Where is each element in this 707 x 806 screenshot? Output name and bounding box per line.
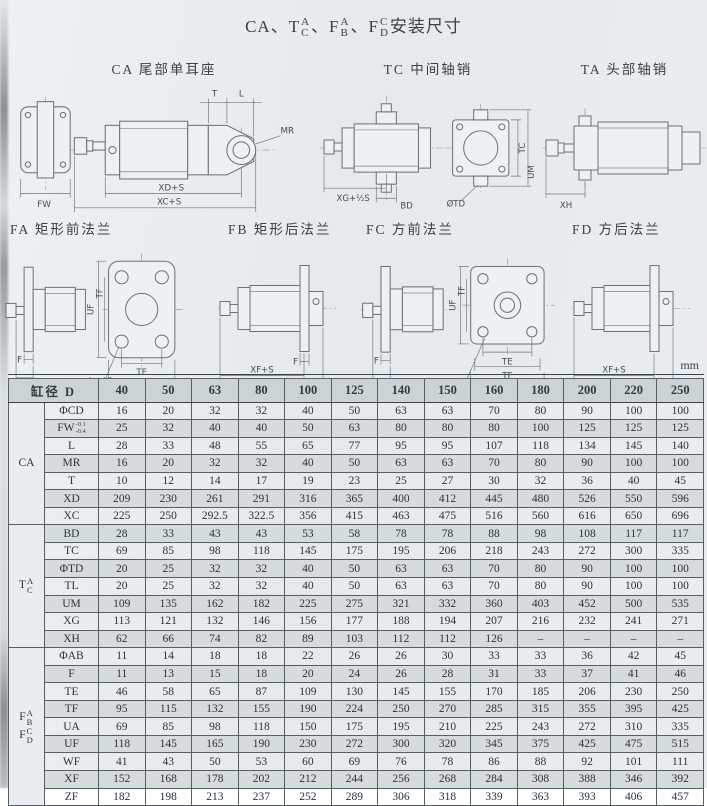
dimension-value: 63 — [424, 402, 471, 420]
dimension-value: 165 — [192, 735, 239, 753]
dimension-label: ΦAB — [45, 648, 99, 666]
dimension-value: 11 — [99, 648, 146, 666]
dimension-value: 243 — [517, 542, 564, 560]
dimension-value: 118 — [517, 437, 564, 455]
dimension-value: 40 — [610, 472, 657, 490]
table-row: FABFCDΦAB11141818222626303333364245 — [9, 648, 704, 666]
dimension-value: 696 — [657, 507, 704, 525]
dimension-value: 140 — [657, 437, 704, 455]
dimension-value: 224 — [331, 700, 378, 718]
dimension-value: 198 — [145, 788, 192, 806]
dimension-value: 109 — [99, 595, 146, 613]
dimension-value: 355 — [564, 700, 611, 718]
dimension-value: 650 — [610, 507, 657, 525]
dimension-value: 316 — [285, 490, 332, 508]
dimension-value: 16 — [99, 455, 146, 473]
dimension-value: 46 — [657, 665, 704, 683]
table-row: XC225250292.5322.53564154634755165606166… — [9, 507, 704, 525]
dimension-value: 41 — [610, 665, 657, 683]
dimension-value: 17 — [238, 472, 285, 490]
dimension-value: 53 — [285, 525, 332, 543]
dimension-value: 78 — [424, 753, 471, 771]
dimension-value: 66 — [145, 630, 192, 648]
dimension-value: 345 — [471, 735, 518, 753]
dimension-value: 46 — [99, 683, 146, 701]
dimension-value: 500 — [610, 595, 657, 613]
dimension-value: 268 — [424, 770, 471, 788]
dimension-value: 322.5 — [238, 507, 285, 525]
dimension-value: 32 — [192, 560, 239, 578]
dimension-value: 100 — [610, 455, 657, 473]
dimension-label: XG — [45, 613, 99, 631]
dimension-value: 335 — [657, 718, 704, 736]
dimension-value: 285 — [471, 700, 518, 718]
dimension-value: 40 — [192, 420, 239, 438]
dimension-value: 27 — [424, 472, 471, 490]
dimension-value: 218 — [471, 542, 518, 560]
dimension-value: 11 — [99, 665, 146, 683]
dimension-value: 16 — [99, 402, 146, 420]
dimension-value: 475 — [424, 507, 471, 525]
dimension-label: XC — [45, 507, 99, 525]
svg-text:UM: UM — [527, 165, 536, 179]
dimension-value: 98 — [517, 525, 564, 543]
dimension-value: 63 — [378, 455, 425, 473]
dimension-value: 40 — [285, 455, 332, 473]
dimension-value: 155 — [238, 700, 285, 718]
dimension-label: WF — [45, 753, 99, 771]
table-row: F11131518202426283133374146 — [9, 665, 704, 683]
dimension-value: 550 — [610, 490, 657, 508]
dimension-value: 188 — [378, 613, 425, 631]
dimension-value: 70 — [471, 402, 518, 420]
dimension-value: 596 — [657, 490, 704, 508]
dimension-value: 145 — [145, 735, 192, 753]
table-row: CAΦCD1620323240506363708090100100 — [9, 402, 704, 420]
title-stack-tac: AC — [301, 17, 310, 40]
dimension-value: 225 — [285, 595, 332, 613]
dimension-value: 95 — [99, 700, 146, 718]
dimension-value: 50 — [192, 753, 239, 771]
dimension-value: – — [657, 630, 704, 648]
dimension-value: 40 — [285, 560, 332, 578]
dimension-value: 395 — [610, 700, 657, 718]
dimension-value: 90 — [564, 577, 611, 595]
dimension-value: 50 — [331, 455, 378, 473]
dimension-label: XD — [45, 490, 99, 508]
dimension-value: 216 — [517, 613, 564, 631]
svg-text:XH: XH — [560, 201, 572, 211]
dimension-value: 10 — [99, 472, 146, 490]
dimension-value: 53 — [238, 753, 285, 771]
dimension-value: 33 — [145, 437, 192, 455]
table-row: MR1620323240506363708090100100 — [9, 455, 704, 473]
dimension-label: UA — [45, 718, 99, 736]
dimension-label: XF — [45, 770, 99, 788]
dimension-value: 62 — [99, 630, 146, 648]
dimension-value: 32 — [145, 420, 192, 438]
diagram-ta: TA 头部轴销 XH — [542, 58, 707, 219]
dimension-value: 20 — [145, 402, 192, 420]
dimension-label: TF — [45, 700, 99, 718]
dimension-value: 36 — [564, 472, 611, 490]
dimension-value: 48 — [192, 437, 239, 455]
dimension-value: 98 — [192, 718, 239, 736]
dimension-label: ΦCD — [45, 402, 99, 420]
dimension-value: 225 — [471, 718, 518, 736]
svg-text:TF: TF — [96, 288, 106, 299]
dimension-value: 616 — [564, 507, 611, 525]
dimension-value: 50 — [331, 577, 378, 595]
dimension-value: 289 — [331, 788, 378, 806]
dimension-value: 80 — [471, 420, 518, 438]
bore-header: 125 — [331, 378, 378, 402]
dimension-value: 63 — [424, 455, 471, 473]
dimension-value: 28 — [424, 665, 471, 683]
dimension-value: 261 — [192, 490, 239, 508]
dimension-value: 69 — [99, 718, 146, 736]
dimension-value: 252 — [285, 788, 332, 806]
dimension-value: 155 — [424, 683, 471, 701]
dimension-value: 195 — [378, 718, 425, 736]
dimension-label: ZF — [45, 788, 99, 806]
dimension-value: 40 — [285, 402, 332, 420]
dimension-value: 50 — [331, 560, 378, 578]
bore-header: 180 — [517, 378, 564, 402]
dimension-value: 50 — [285, 420, 332, 438]
dimension-value: – — [564, 630, 611, 648]
bore-header: 250 — [657, 378, 704, 402]
dimension-value: 80 — [378, 420, 425, 438]
dimension-value: 32 — [238, 560, 285, 578]
table-row: UM10913516218222527532133236040345250053… — [9, 595, 704, 613]
dimension-value: 535 — [657, 595, 704, 613]
table-row: TL2025323240506363708090100100 — [9, 577, 704, 595]
dimension-value: 230 — [610, 683, 657, 701]
dimension-value: 185 — [517, 683, 564, 701]
table-row: FW-0.1-0.4253240405063808080100125125125 — [9, 420, 704, 438]
dimension-value: 90 — [564, 402, 611, 420]
bore-header: 50 — [145, 378, 192, 402]
bore-header: 200 — [564, 378, 611, 402]
dimension-value: 63 — [378, 577, 425, 595]
dimension-value: 256 — [378, 770, 425, 788]
dimension-value: – — [517, 630, 564, 648]
dimension-value: 69 — [99, 542, 146, 560]
dimension-value: 100 — [610, 402, 657, 420]
dimension-value: 195 — [378, 542, 425, 560]
dimension-value: 41 — [99, 753, 146, 771]
dimension-value: 320 — [424, 735, 471, 753]
dimension-value: 90 — [564, 560, 611, 578]
dimension-value: 346 — [610, 770, 657, 788]
dimension-value: 560 — [517, 507, 564, 525]
table-row: UF11814516519023027230032034537542547551… — [9, 735, 704, 753]
dimension-value: 230 — [285, 735, 332, 753]
dimension-value: 36 — [564, 648, 611, 666]
dimension-value: 40 — [238, 420, 285, 438]
svg-text:L: L — [239, 89, 244, 99]
dimension-value: 209 — [99, 490, 146, 508]
dimension-value: 33 — [145, 525, 192, 543]
svg-text:UF: UF — [448, 300, 458, 311]
dimension-value: 207 — [471, 613, 518, 631]
dimension-value: 100 — [610, 560, 657, 578]
dimension-value: 42 — [610, 648, 657, 666]
tc-drawing: XG+½S BD ØTD TC UM — [320, 80, 536, 214]
dimension-value: 32 — [238, 577, 285, 595]
dimension-value: 80 — [517, 560, 564, 578]
dimension-label: TL — [45, 577, 99, 595]
table-row: ΦTD2025323240506363708090100100 — [9, 560, 704, 578]
dimension-value: 20 — [145, 455, 192, 473]
dimension-value: 213 — [192, 788, 239, 806]
dimension-label: BD — [45, 525, 99, 543]
dimension-value: 150 — [285, 718, 332, 736]
dimension-value: 230 — [145, 490, 192, 508]
dimension-value: 100 — [517, 420, 564, 438]
dimension-value: 206 — [564, 683, 611, 701]
dimension-value: 244 — [331, 770, 378, 788]
dimension-value: 12 — [145, 472, 192, 490]
dimension-value: 178 — [192, 770, 239, 788]
svg-text:T: T — [211, 89, 218, 99]
dimension-value: 112 — [424, 630, 471, 648]
table-row: L2833485565779595107118134145140 — [9, 437, 704, 455]
dimension-value: 515 — [657, 735, 704, 753]
dimension-label: TE — [45, 683, 99, 701]
dimension-label: ΦTD — [45, 560, 99, 578]
dimension-value: 40 — [285, 577, 332, 595]
dimension-value: 88 — [471, 525, 518, 543]
table-header-row: 缸径 D40506380100125140150160180200220250 — [9, 378, 704, 402]
ca-drawing: FW T L MR XD+S XC+S — [14, 80, 314, 214]
group-label: FABFCD — [9, 648, 45, 806]
dimension-value: 182 — [99, 788, 146, 806]
dimension-value: 20 — [285, 665, 332, 683]
dimension-value: 125 — [564, 420, 611, 438]
dimension-table: 缸径 D40506380100125140150160180200220250C… — [8, 378, 704, 806]
svg-text:F: F — [293, 358, 298, 368]
dimension-value: 63 — [378, 560, 425, 578]
dimension-value: 146 — [238, 613, 285, 631]
dimension-value: 392 — [657, 770, 704, 788]
dimension-value: 194 — [424, 613, 471, 631]
dimension-label: L — [45, 437, 99, 455]
dimension-value: 318 — [424, 788, 471, 806]
dimension-value: 32 — [192, 577, 239, 595]
table-corner-header: 缸径 D — [9, 378, 99, 402]
dimension-value: 80 — [517, 577, 564, 595]
dimension-value: 28 — [99, 437, 146, 455]
dimension-value: 14 — [145, 648, 192, 666]
bore-header: 63 — [192, 378, 239, 402]
dimension-value: 232 — [564, 613, 611, 631]
dimension-value: 315 — [517, 700, 564, 718]
dimension-value: 292.5 — [192, 507, 239, 525]
dimension-value: 145 — [378, 683, 425, 701]
svg-text:ØTD: ØTD — [447, 198, 466, 209]
dimension-value: 108 — [564, 525, 611, 543]
dimension-value: 118 — [238, 542, 285, 560]
ta-drawing: XH — [542, 80, 707, 214]
bore-header: 150 — [424, 378, 471, 402]
dimension-value: 65 — [192, 683, 239, 701]
dimension-value: 33 — [517, 665, 564, 683]
dimension-value: 275 — [331, 595, 378, 613]
diagram-fa-caption: FA 矩形前法兰 — [4, 218, 200, 238]
bore-header: 80 — [238, 378, 285, 402]
dimension-value: 272 — [331, 735, 378, 753]
dimension-value: 306 — [378, 788, 425, 806]
dimension-value: 250 — [657, 683, 704, 701]
dimension-value: 18 — [238, 665, 285, 683]
diagram-ta-caption: TA 头部轴销 — [542, 58, 707, 78]
svg-text:BD: BD — [400, 201, 413, 211]
dimension-value: 18 — [238, 648, 285, 666]
dimension-value: 168 — [145, 770, 192, 788]
table-row: XH6266748289103112112126–––– — [9, 630, 704, 648]
table-row: UA698598118150175195210225243272310335 — [9, 718, 704, 736]
dimension-value: 271 — [657, 613, 704, 631]
dimension-value: 63 — [378, 402, 425, 420]
svg-text:UF: UF — [86, 304, 96, 315]
dimension-value: 272 — [564, 542, 611, 560]
dimension-value: 20 — [99, 577, 146, 595]
dimension-value: 400 — [378, 490, 425, 508]
dimension-value: 25 — [145, 560, 192, 578]
dimension-value: 356 — [285, 507, 332, 525]
dimension-value: 135 — [145, 595, 192, 613]
unit-label: mm — [680, 358, 699, 373]
dimension-value: 65 — [285, 437, 332, 455]
table-top-rule — [8, 374, 704, 375]
dimension-value: 272 — [564, 718, 611, 736]
dimension-value: 101 — [610, 753, 657, 771]
diagram-ca-caption: CA 尾部单耳座 — [14, 58, 314, 78]
dimension-value: 26 — [378, 648, 425, 666]
dimension-value: 58 — [145, 683, 192, 701]
dimension-value: 89 — [285, 630, 332, 648]
dimension-value: 241 — [610, 613, 657, 631]
dimension-value: 32 — [517, 472, 564, 490]
dimension-value: 339 — [471, 788, 518, 806]
dimension-value: 212 — [285, 770, 332, 788]
dimension-value: 406 — [610, 788, 657, 806]
dimension-value: 403 — [517, 595, 564, 613]
svg-text:F: F — [17, 356, 22, 366]
group-label: CA — [9, 402, 45, 525]
svg-text:XG+½S: XG+½S — [337, 194, 370, 204]
dimension-value: 43 — [192, 525, 239, 543]
dimension-value: 76 — [378, 753, 425, 771]
dimension-value: 60 — [285, 753, 332, 771]
dimension-value: 111 — [657, 753, 704, 771]
catalog-page: CA、TAC、FAB、FCD安装尺寸 CA 尾部单耳座 FW T L MR — [0, 0, 707, 788]
dimension-value: 156 — [285, 613, 332, 631]
dimension-value: 375 — [517, 735, 564, 753]
diagram-tc: TC 中间轴销 XG+½S BD ØTD TC UM — [320, 58, 536, 219]
dimension-value: 95 — [378, 437, 425, 455]
group-label: TAC — [9, 525, 45, 648]
dimension-value: 70 — [471, 577, 518, 595]
dimension-value: 78 — [424, 525, 471, 543]
dimension-value: 82 — [238, 630, 285, 648]
dimension-value: 206 — [424, 542, 471, 560]
bore-header: 140 — [378, 378, 425, 402]
dimension-table-wrap: 缸径 D40506380100125140150160180200220250C… — [8, 374, 704, 806]
dimension-value: 175 — [331, 542, 378, 560]
dimension-value: 37 — [564, 665, 611, 683]
svg-text:TF: TF — [458, 286, 468, 297]
dimension-value: 393 — [564, 788, 611, 806]
dimension-value: 15 — [192, 665, 239, 683]
dimension-value: 118 — [238, 718, 285, 736]
dimension-value: 130 — [331, 683, 378, 701]
dimension-value: 132 — [192, 700, 239, 718]
bore-header: 100 — [285, 378, 332, 402]
dimension-value: 175 — [331, 718, 378, 736]
dimension-value: 308 — [517, 770, 564, 788]
dimension-value: 107 — [471, 437, 518, 455]
title-stack-fcd: CD — [380, 17, 389, 40]
dimension-value: 412 — [424, 490, 471, 508]
dimension-value: 32 — [192, 402, 239, 420]
dimension-value: 77 — [331, 437, 378, 455]
dimension-value: 25 — [99, 420, 146, 438]
dimension-value: 250 — [145, 507, 192, 525]
dimension-value: 365 — [331, 490, 378, 508]
title-text: CA、T — [245, 17, 300, 36]
dimension-value: 55 — [238, 437, 285, 455]
dimension-value: 125 — [610, 420, 657, 438]
dimension-value: 28 — [99, 525, 146, 543]
dimension-value: 125 — [657, 420, 704, 438]
svg-text:TC: TC — [518, 143, 528, 155]
dimension-value: 23 — [331, 472, 378, 490]
dimension-value: 475 — [610, 735, 657, 753]
bore-header: 40 — [99, 378, 146, 402]
table-row: WF4143505360697678868892101111 — [9, 753, 704, 771]
dimension-value: 25 — [378, 472, 425, 490]
dimension-value: 33 — [517, 648, 564, 666]
dimension-value: 43 — [145, 753, 192, 771]
diagram-fc-caption: FC 方前法兰 — [360, 218, 560, 238]
dimension-value: 30 — [424, 648, 471, 666]
dimension-value: 134 — [564, 437, 611, 455]
dimension-value: 115 — [145, 700, 192, 718]
svg-text:TE: TE — [501, 357, 513, 367]
dimension-value: 32 — [238, 455, 285, 473]
diagram-fd-caption: FD 方后法兰 — [572, 218, 707, 238]
dimension-value: 33 — [471, 648, 518, 666]
dimension-value: 43 — [238, 525, 285, 543]
dimension-value: 32 — [192, 455, 239, 473]
dimension-value: 162 — [192, 595, 239, 613]
dimension-value: 26 — [331, 648, 378, 666]
dimension-value: 284 — [471, 770, 518, 788]
dimension-label: TC — [45, 542, 99, 560]
dimension-value: 30 — [471, 472, 518, 490]
dimension-value: 243 — [517, 718, 564, 736]
dimension-value: 100 — [610, 577, 657, 595]
svg-text:FW: FW — [37, 200, 51, 210]
dimension-value: 70 — [471, 455, 518, 473]
dimension-value: 363 — [517, 788, 564, 806]
dimension-value: 526 — [564, 490, 611, 508]
dimension-value: 415 — [331, 507, 378, 525]
dimension-label: FW-0.1-0.4 — [45, 420, 99, 438]
